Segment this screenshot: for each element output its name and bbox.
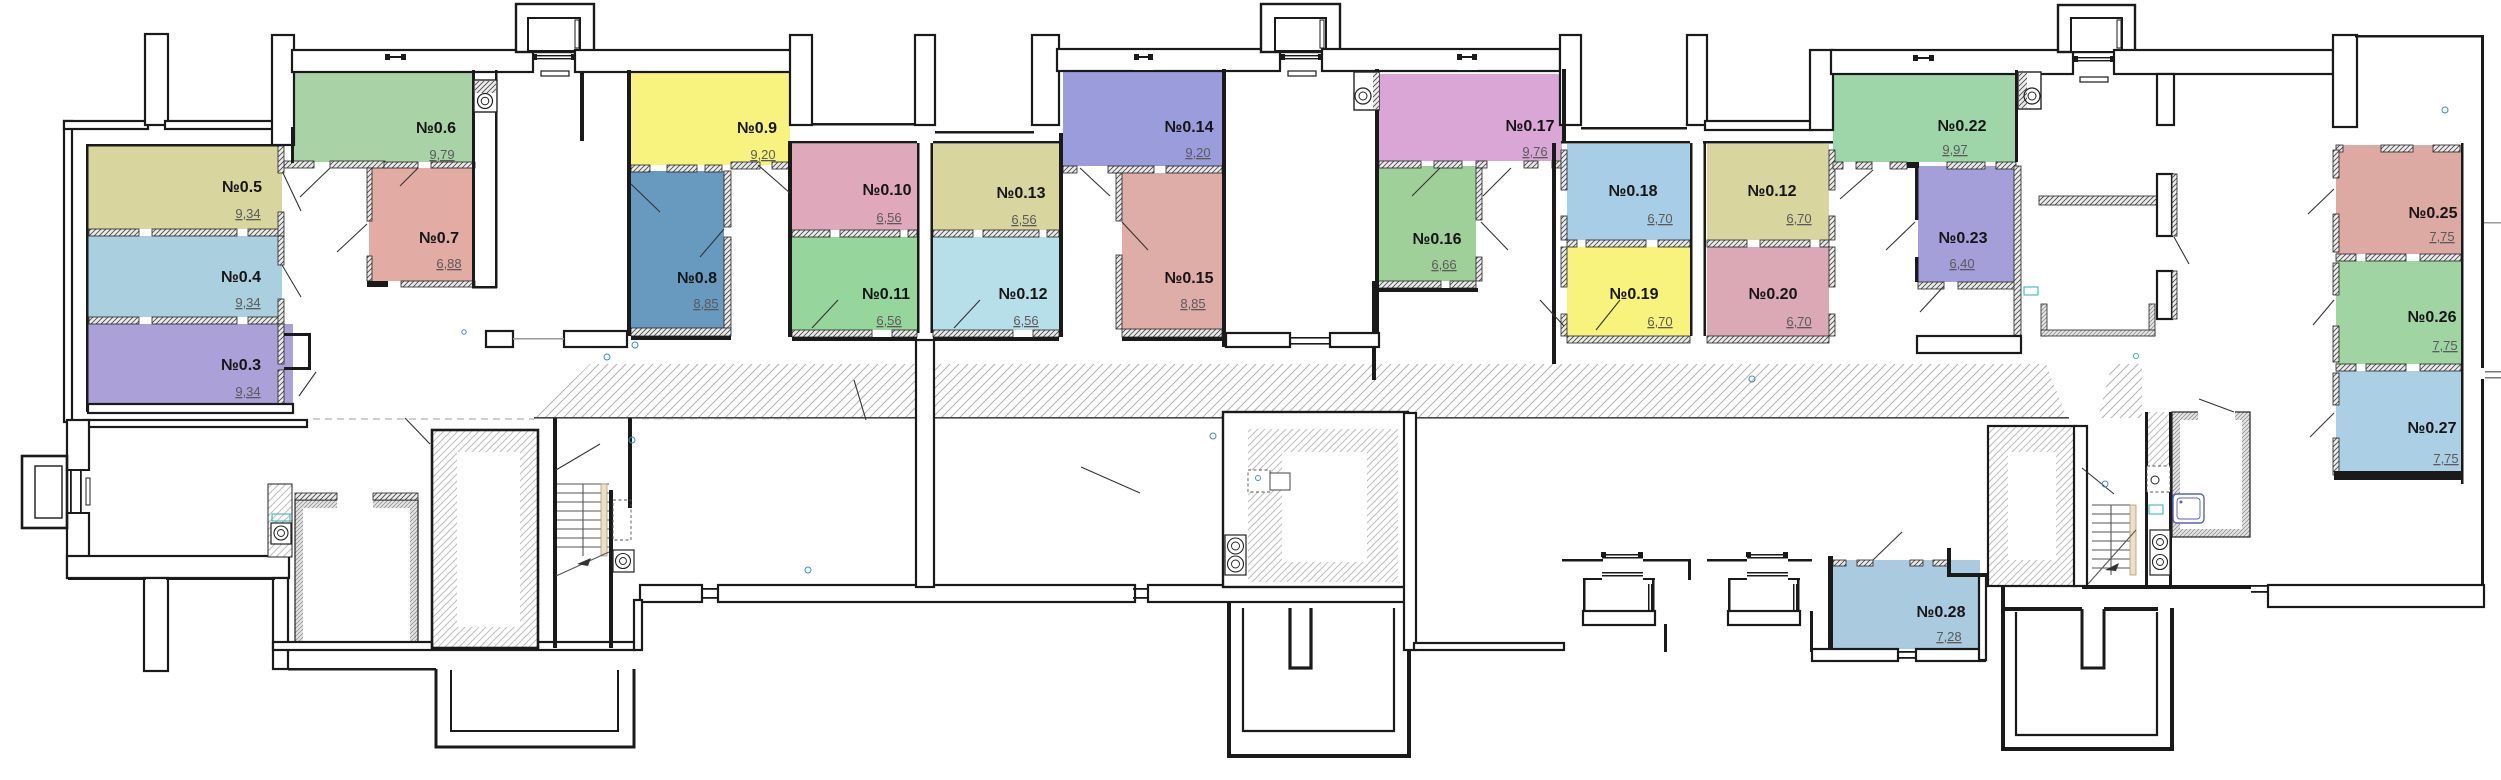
svg-text:№0.13: №0.13 xyxy=(997,185,1046,202)
svg-text:№0.3: №0.3 xyxy=(221,357,261,374)
svg-text:№0.22: №0.22 xyxy=(1938,118,1987,135)
svg-text:6,56: 6,56 xyxy=(876,313,901,328)
svg-text:7,75: 7,75 xyxy=(2433,451,2458,466)
svg-text:№0.27: №0.27 xyxy=(2408,420,2457,437)
svg-text:7,75: 7,75 xyxy=(2429,229,2454,244)
svg-text:№0.18: №0.18 xyxy=(1609,183,1658,200)
svg-text:№0.8: №0.8 xyxy=(677,270,717,287)
svg-text:№0.20: №0.20 xyxy=(1749,286,1798,303)
svg-text:9,97: 9,97 xyxy=(1942,142,1967,157)
svg-text:9,34: 9,34 xyxy=(235,384,260,399)
svg-text:9,79: 9,79 xyxy=(429,147,454,162)
svg-text:№0.19: №0.19 xyxy=(1610,286,1659,303)
svg-text:№0.7: №0.7 xyxy=(419,230,459,247)
svg-text:6,40: 6,40 xyxy=(1949,256,1974,271)
svg-text:6,88: 6,88 xyxy=(436,256,461,271)
svg-text:9,34: 9,34 xyxy=(235,295,260,310)
svg-text:№0.6: №0.6 xyxy=(416,120,456,137)
svg-text:№0.28: №0.28 xyxy=(1917,604,1966,621)
svg-text:№0.9: №0.9 xyxy=(737,120,777,137)
svg-text:9,20: 9,20 xyxy=(750,147,775,162)
svg-text:№0.11: №0.11 xyxy=(862,286,910,303)
svg-text:№0.12: №0.12 xyxy=(1748,183,1797,200)
svg-text:№0.12: №0.12 xyxy=(999,286,1048,303)
svg-text:9,20: 9,20 xyxy=(1185,145,1210,160)
svg-text:7,75: 7,75 xyxy=(2432,338,2457,353)
svg-text:№0.17: №0.17 xyxy=(1506,118,1555,135)
svg-text:6,56: 6,56 xyxy=(1011,212,1036,227)
svg-text:6,70: 6,70 xyxy=(1647,314,1672,329)
svg-text:№0.10: №0.10 xyxy=(863,182,912,199)
svg-text:№0.25: №0.25 xyxy=(2409,205,2458,222)
svg-text:6,70: 6,70 xyxy=(1647,211,1672,226)
svg-text:8,85: 8,85 xyxy=(1180,296,1205,311)
svg-text:8,85: 8,85 xyxy=(693,296,718,311)
svg-text:№0.15: №0.15 xyxy=(1165,270,1214,287)
svg-text:№0.16: №0.16 xyxy=(1413,231,1462,248)
svg-text:9,76: 9,76 xyxy=(1522,144,1547,159)
svg-text:6,66: 6,66 xyxy=(1431,257,1456,272)
svg-text:№0.23: №0.23 xyxy=(1939,230,1988,247)
svg-text:7,28: 7,28 xyxy=(1936,629,1961,644)
svg-text:№0.14: №0.14 xyxy=(1165,119,1214,136)
svg-text:6,70: 6,70 xyxy=(1786,211,1811,226)
svg-text:№0.5: №0.5 xyxy=(222,179,262,196)
svg-text:6,56: 6,56 xyxy=(876,210,901,225)
svg-text:№0.26: №0.26 xyxy=(2408,309,2457,326)
svg-text:6,70: 6,70 xyxy=(1786,314,1811,329)
svg-text:6,56: 6,56 xyxy=(1013,313,1038,328)
svg-text:9,34: 9,34 xyxy=(235,206,260,221)
svg-text:№0.4: №0.4 xyxy=(221,269,261,286)
